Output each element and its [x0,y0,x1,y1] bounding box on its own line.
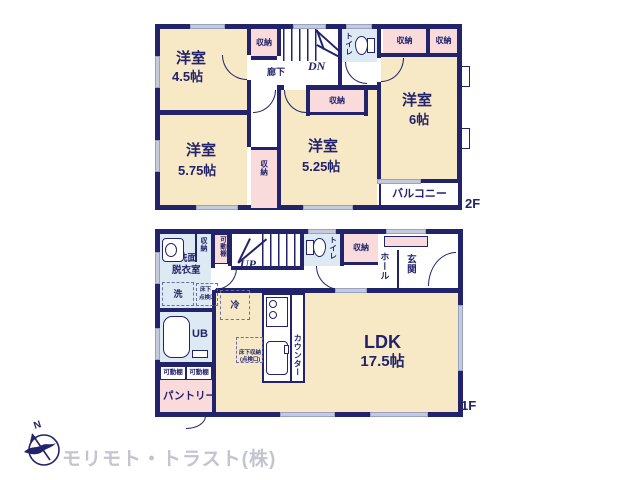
room-size: 6帖 [409,113,429,128]
fridge-label: 冷 [221,291,249,319]
floor-hatch-label-1: 床下 [200,287,211,293]
stairs-dn-label: DN [308,59,325,74]
window [280,412,335,417]
door-arc [186,416,206,429]
ldk-name: LDK [330,332,435,353]
floor1-label: 1F [461,399,476,414]
window [370,412,428,417]
balcony: バルコニー [379,181,460,207]
window [155,328,160,360]
closet: 収納 [251,29,277,56]
floorplan-page: 収納 収納 収納 収納 収納 DN 廊下 トイレ 洋室 4.5帖 洋室 5.75… [0,0,640,480]
sliding-door [377,179,421,184]
room-size: 5.25帖 [302,160,340,175]
wall [247,80,251,115]
shelf-label: 可動棚 [187,367,211,379]
shoe-cabinet [384,236,428,247]
hall-label: ホール [379,252,389,281]
closet-label: 収納 [259,160,268,176]
movable-shelf-label: 可動棚 [218,236,225,257]
room-name: 洋室 [186,142,216,159]
wall [160,110,247,115]
window [458,305,463,371]
bath-label: UB [192,328,208,341]
closet-label: 収納 [383,29,426,53]
wall [251,56,277,60]
closet-label: 収納 [430,29,457,53]
burner-icon [269,311,277,319]
closet: 収納 [310,90,364,115]
balcony-label: バルコニー [381,183,458,205]
stairs-2f [283,29,317,61]
wall [367,288,458,293]
entrance-step-line [397,250,399,292]
bath-counter-icon [192,350,208,358]
entrance-label: 玄関 [404,254,415,274]
washroom-closet-label: 収納 [199,237,207,252]
closet-label: 収納 [344,234,378,262]
hallway-label: 廊下 [267,67,285,77]
toilet-tank-icon [367,38,375,53]
closet: 収納 [344,234,378,265]
window [386,229,426,234]
compass-icon [20,422,68,472]
room-bedroom-5-75 [160,115,247,205]
closet-label: 収納 [251,29,277,56]
closet-label: 収納 [310,90,364,112]
closet: 収納 [430,29,457,53]
wall [247,115,251,147]
company-name: モリモト・トラスト(株) [62,444,276,471]
room-name: 洋室 [402,92,432,109]
window [155,56,160,88]
window [196,205,238,210]
room-size: 4.5帖 [172,70,203,85]
sliding-door [335,288,367,293]
casement-window [461,128,470,149]
room-name: 洋室 [176,50,206,67]
toilet-label-1f: トイレ [328,236,337,260]
shelf-box: 可動棚 [160,366,186,380]
window [308,229,336,234]
laundry-label: 洗 [163,283,193,305]
window [303,205,353,210]
wall [377,82,381,179]
wall [228,234,232,266]
bathtub-icon [163,316,190,358]
washroom-label-2: 脱衣室 [172,266,201,277]
room-size: 5.75帖 [178,164,216,179]
laundry-space: 洗 [162,282,194,306]
room-name: 洋室 [308,138,338,155]
wall [277,90,281,205]
closet: 収納 [251,147,277,208]
ldk-size: 17.5帖 [330,353,435,370]
toilet-label-2f: トイレ [344,32,353,56]
wall [381,53,457,57]
sink-bowl-icon [165,243,177,257]
pantry-label: パントリー [163,390,216,402]
underfloor-storage-label-1: 床下収納 [239,350,261,356]
window [346,24,372,29]
burner-icon [269,300,277,308]
stairs-up-label: UP [240,257,256,272]
underfloor-storage: 床下収納 (点検口) [236,337,263,363]
stairs-1f [262,234,300,266]
wall [306,90,310,116]
faucet-icon [284,345,289,354]
casement-window [461,66,470,87]
wall [364,90,368,116]
compass: N [20,422,68,472]
wall [277,29,281,56]
fridge-space: 冷 [220,290,250,320]
shelf-box: 可動棚 [186,366,212,380]
wall [160,308,212,312]
shelf-label: 可動棚 [161,367,185,379]
window [190,24,225,29]
underfloor-storage-label-2: (点検口) [240,357,260,363]
window [155,140,160,172]
kitchen-divider [290,295,292,381]
counter-label: カウンター [293,334,302,377]
window [293,24,326,29]
floor-hatch-label-2: 点検口 [199,295,216,301]
window [155,252,160,284]
floor2-label: 2F [465,197,480,212]
closet: 収納 [383,29,426,53]
